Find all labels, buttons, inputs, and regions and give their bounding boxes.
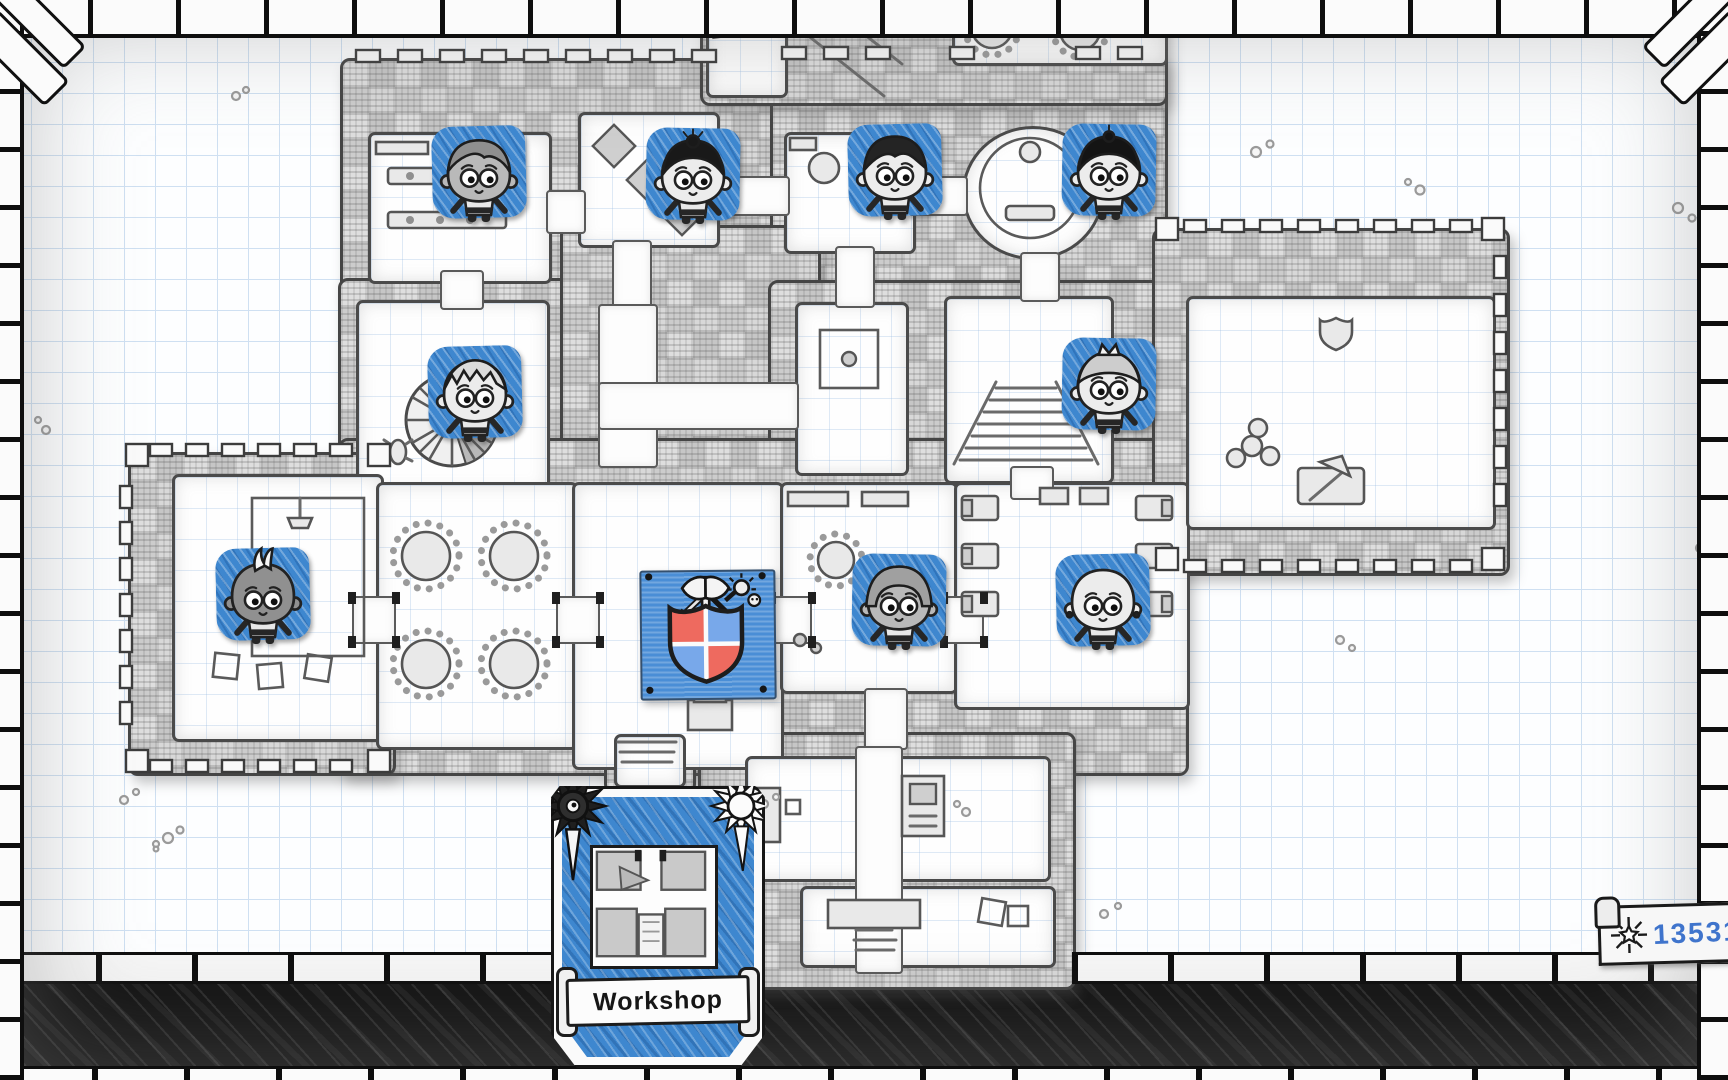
hero-token-adventurer-3[interactable] (848, 124, 942, 230)
guild-map-screen: Workshop (0, 0, 1728, 1080)
room-east-wing-hall (1186, 296, 1496, 530)
card-title-ribbon: Workshop (558, 975, 758, 1025)
hero-token-adventurer-1[interactable] (432, 126, 526, 232)
hero-token-adventurer-4[interactable] (1062, 124, 1156, 230)
hero-portrait-icon (220, 552, 306, 650)
workshop-room-thumbnail (590, 845, 718, 969)
corridor (556, 596, 600, 644)
left-brick-border (0, 0, 24, 1080)
room-card-workshop[interactable]: Workshop (551, 786, 765, 1068)
corridor (1020, 252, 1060, 302)
room-south-bottom (800, 886, 1056, 968)
hero-token-adventurer-5[interactable] (428, 346, 522, 452)
hero-token-adventurer-2[interactable] (646, 128, 740, 234)
bottom-brick-row (0, 1066, 1728, 1080)
hero-portrait-icon (436, 130, 522, 228)
hero-token-adventurer-6[interactable] (1062, 338, 1156, 444)
card-title: Workshop (593, 985, 723, 1017)
hero-portrait-icon (856, 558, 942, 656)
corridor (772, 596, 812, 644)
hero-token-adventurer-7[interactable] (216, 548, 310, 654)
room-antechamber (795, 302, 909, 476)
gold-counter: 13531 (1597, 902, 1728, 966)
hero-portrait-icon (650, 132, 736, 230)
room-porch (614, 734, 686, 788)
corridor (546, 190, 586, 234)
quartered-shield-crest-icon (639, 569, 772, 696)
hero-portrait-icon (1060, 558, 1146, 656)
corridor (1010, 466, 1054, 500)
corridor (352, 596, 396, 644)
room-south-right (885, 756, 1051, 882)
bottom-hatch-band (0, 978, 1728, 1066)
corridor (612, 240, 652, 310)
corridor (440, 270, 484, 310)
gold-amount: 13531 (1652, 915, 1728, 951)
room-dining-tables (376, 482, 578, 750)
corridor (598, 382, 799, 430)
corridor (855, 746, 903, 974)
hero-portrait-icon (852, 128, 938, 226)
top-brick-border (0, 0, 1728, 38)
guild-crest-banner (639, 569, 776, 700)
hero-portrait-icon (432, 350, 518, 448)
corridor (835, 246, 875, 308)
hero-token-adventurer-9[interactable] (1056, 554, 1150, 660)
hero-token-adventurer-8[interactable] (852, 554, 946, 660)
corridor (864, 688, 908, 750)
corridor (944, 596, 984, 644)
hero-portrait-icon (1066, 342, 1152, 440)
hero-portrait-icon (1066, 128, 1152, 226)
scroll-curl (1594, 896, 1621, 929)
